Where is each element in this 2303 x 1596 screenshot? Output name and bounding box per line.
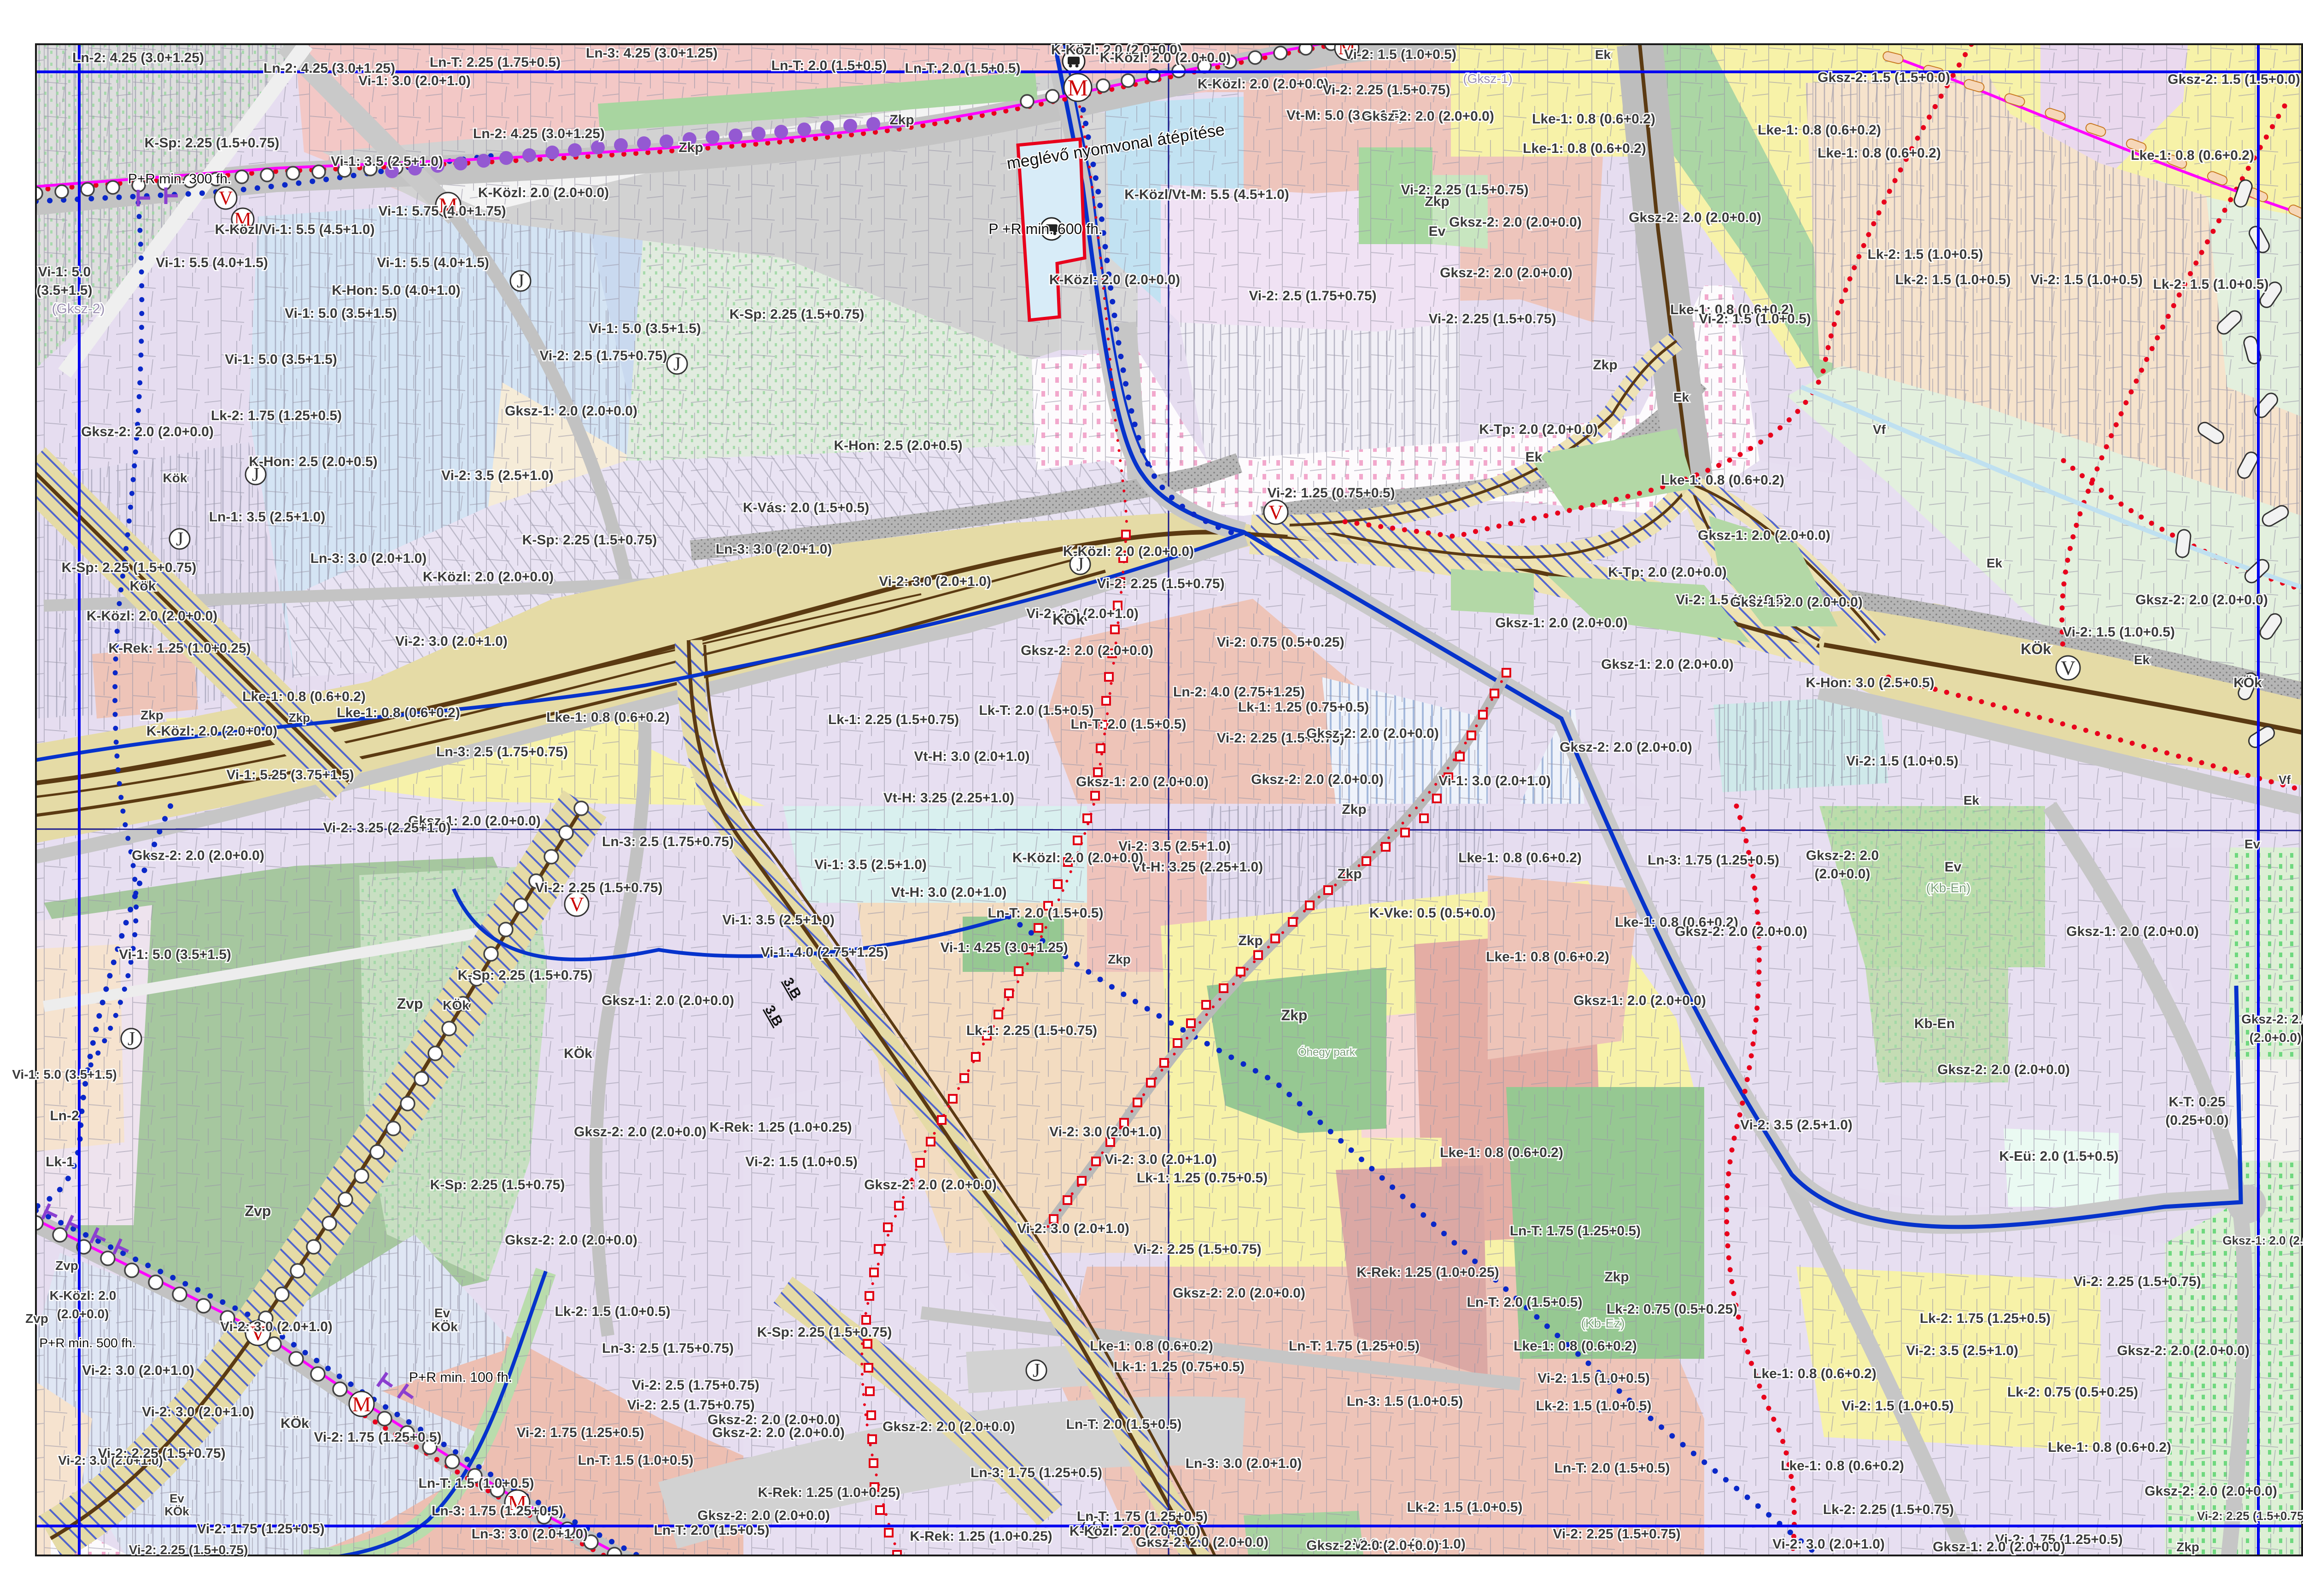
svg-text:Kök: Kök (130, 579, 156, 594)
svg-text:Ek: Ek (1964, 793, 1980, 807)
svg-text:KÖk: KÖk (2021, 641, 2051, 657)
svg-text:Zkp: Zkp (1238, 933, 1263, 948)
svg-text:V: V (569, 893, 584, 916)
svg-text:Ev: Ev (1429, 224, 1446, 239)
svg-text:Gksz-1: 2.0 (2.0+0.0): Gksz-1: 2.0 (2.0+0.0) (1573, 993, 1706, 1008)
svg-text:(Kb-En): (Kb-En) (1926, 881, 1970, 895)
svg-text:K-Rek: 1.25 (1.0+0.25): K-Rek: 1.25 (1.0+0.25) (758, 1485, 900, 1500)
svg-text:K-Közl: 2.0 (2.0+0.0): K-Közl: 2.0 (2.0+0.0) (1198, 76, 1328, 92)
svg-text:P+R min. 300 fh.: P+R min. 300 fh. (128, 171, 231, 187)
svg-text:Vi-2: 2.5 (1.75+0.75): Vi-2: 2.5 (1.75+0.75) (627, 1397, 754, 1413)
svg-text:Vi-2: 1.5 (1.0+0.5): Vi-2: 1.5 (1.0+0.5) (1699, 311, 1811, 327)
svg-text:(2.0+0.0): (2.0+0.0) (1815, 866, 1870, 882)
svg-text:K-Sp: 2.25 (1.5+0.75): K-Sp: 2.25 (1.5+0.75) (430, 1177, 565, 1193)
svg-text:Vi-2: 1.75 (1.25+0.5): Vi-2: 1.75 (1.25+0.5) (516, 1425, 644, 1440)
svg-text:Lk-2: 2.25 (1.5+0.75): Lk-2: 2.25 (1.5+0.75) (1823, 1502, 1954, 1517)
svg-text:Ek: Ek (2134, 653, 2150, 667)
svg-text:K-Tp: 2.0 (2.0+0.0): K-Tp: 2.0 (2.0+0.0) (1479, 422, 1598, 437)
svg-text:K-Sp: 2.25 (1.5+0.75): K-Sp: 2.25 (1.5+0.75) (757, 1325, 892, 1340)
svg-text:(Gksz-2): (Gksz-2) (52, 301, 105, 316)
svg-text:K-Hon: 3.0 (2.5+0.5): K-Hon: 3.0 (2.5+0.5) (1806, 675, 1934, 690)
svg-text:Gksz-2: 2.0 (2.0+0.0): Gksz-2: 2.0 (2.0+0.0) (712, 1425, 845, 1440)
svg-text:K-Közl: 2.0 (2.0+0.0): K-Közl: 2.0 (2.0+0.0) (478, 185, 609, 200)
svg-text:Vi-1: 5.0 (3.5+1.5): Vi-1: 5.0 (3.5+1.5) (285, 306, 397, 321)
svg-text:Gksz-2: 2.0 (2.0+0.0): Gksz-2: 2.0 (2.0+0.0) (1306, 726, 1439, 741)
svg-text:Lke-1: 0.8 (0.6+0.2): Lke-1: 0.8 (0.6+0.2) (1458, 850, 1582, 865)
svg-text:Vi-2: 1.5 (1.0+0.5): Vi-2: 1.5 (1.0+0.5) (1344, 47, 1456, 62)
svg-text:KÖk: KÖk (281, 1416, 309, 1431)
svg-text:Vi-1: 5.0: Vi-1: 5.0 (38, 264, 91, 280)
svg-text:Lk-2: 1.5 (1.0+0.5): Lk-2: 1.5 (1.0+0.5) (555, 1304, 671, 1319)
svg-text:K-Rek: 1.25 (1.0+0.25): K-Rek: 1.25 (1.0+0.25) (1356, 1265, 1499, 1280)
svg-text:K-Közl: 2.0 (2.0+0.0): K-Közl: 2.0 (2.0+0.0) (146, 724, 277, 739)
svg-text:Ek: Ek (1526, 450, 1543, 465)
svg-text:Vt-H: 3.25 (2.25+1.0): Vt-H: 3.25 (2.25+1.0) (1132, 859, 1263, 875)
svg-text:Gksz-1: 2.0 (2.0+0.0): Gksz-1: 2.0 (2.0+0.0) (602, 993, 734, 1008)
svg-text:Zvp: Zvp (245, 1203, 271, 1219)
svg-text:Vi-2: 3.0 (2.0+1.0): Vi-2: 3.0 (2.0+1.0) (395, 634, 508, 649)
svg-text:K-Rek: 1.25 (1.0+0.25): K-Rek: 1.25 (1.0+0.25) (709, 1120, 852, 1135)
svg-text:Vi-2: 1.5 (1.0+0.5): Vi-2: 1.5 (1.0+0.5) (1846, 754, 1958, 769)
svg-text:Lk-1: 1.25 (0.75+0.5): Lk-1: 1.25 (0.75+0.5) (1137, 1170, 1268, 1186)
svg-text:Vi-2: 2.25 (1.5+0.75): Vi-2: 2.25 (1.5+0.75) (2197, 1509, 2303, 1523)
svg-text:J: J (673, 354, 681, 375)
svg-text:Gksz-2: 2.0 (2.0+0.0): Gksz-2: 2.0 (2.0+0.0) (1449, 215, 1582, 230)
svg-text:Lke-1: 0.8 (0.6+0.2): Lke-1: 0.8 (0.6+0.2) (1753, 1366, 1876, 1381)
svg-text:Ek: Ek (1595, 47, 1611, 62)
svg-text:K-Tp: 2.0 (2.0+0.0): K-Tp: 2.0 (2.0+0.0) (1608, 565, 1727, 580)
svg-text:Lke-1: 0.8 (0.6+0.2): Lke-1: 0.8 (0.6+0.2) (1818, 146, 1941, 161)
svg-text:Ln-T: 2.0 (1.5+0.5): Ln-T: 2.0 (1.5+0.5) (1555, 1461, 1670, 1476)
svg-text:V: V (1268, 501, 1283, 524)
svg-text:Vi-2: 0.75 (0.5+0.25): Vi-2: 0.75 (0.5+0.25) (1216, 635, 1344, 650)
svg-text:Ln-3: 1.75 (1.25+0.5): Ln-3: 1.75 (1.25+0.5) (970, 1465, 1102, 1480)
svg-text:Vi-2: 2.5 (1.75+0.75): Vi-2: 2.5 (1.75+0.75) (1249, 288, 1376, 304)
svg-text:Ln-2: 4.25 (3.0+1.25): Ln-2: 4.25 (3.0+1.25) (72, 50, 204, 65)
svg-text:Ln-3: 1.75 (1.25+0.5): Ln-3: 1.75 (1.25+0.5) (432, 1503, 563, 1519)
svg-text:Ln-T: 2.0 (1.5+0.5): Ln-T: 2.0 (1.5+0.5) (988, 906, 1104, 921)
svg-text:P+R min. 100 fh.: P+R min. 100 fh. (409, 1370, 512, 1385)
svg-text:Gksz-2: 2.0 (2.0+0.0): Gksz-2: 2.0 (2.0+0.0) (1021, 643, 1153, 658)
svg-text:(3.5+1.5): (3.5+1.5) (37, 283, 93, 298)
svg-text:K-Hon: 2.5 (2.0+0.5): K-Hon: 2.5 (2.0+0.5) (834, 438, 962, 453)
svg-text:Zkp: Zkp (1337, 866, 1362, 882)
svg-text:Ln-T: 1.75 (1.25+0.5): Ln-T: 1.75 (1.25+0.5) (1077, 1509, 1208, 1524)
svg-text:Gksz-2: 2.0 (2.0+0.0): Gksz-2: 2.0 (2.0+0.0) (1251, 772, 1384, 787)
svg-text:K-Eü: 2.0 (1.5+0.5): K-Eü: 2.0 (1.5+0.5) (1999, 1149, 2118, 1164)
svg-text:Lke-1: 0.8 (0.6+0.2): Lke-1: 0.8 (0.6+0.2) (1486, 949, 1609, 965)
svg-text:Vi-1: 4.25 (3.0+1.25): Vi-1: 4.25 (3.0+1.25) (940, 940, 1068, 955)
svg-text:Lke-1: 0.8 (0.6+0.2): Lke-1: 0.8 (0.6+0.2) (1090, 1339, 1213, 1354)
svg-text:Vi-1: 5.25 (3.75+1.5): Vi-1: 5.25 (3.75+1.5) (226, 767, 354, 783)
svg-text:Vi-1: 3.0 (2.0+1.0): Vi-1: 3.0 (2.0+1.0) (1438, 773, 1551, 789)
svg-text:Lke-1: 0.8 (0.6+0.2): Lke-1: 0.8 (0.6+0.2) (1758, 123, 1881, 138)
svg-text:Vi-1: 3.5 (2.5+1.0): Vi-1: 3.5 (2.5+1.0) (814, 857, 927, 872)
svg-text:Gksz-2: 2.0 (2.0+0.0): Gksz-2: 2.0 (2.0+0.0) (1440, 265, 1572, 281)
svg-text:Lk-2: 0.75 (0.5+0.25): Lk-2: 0.75 (0.5+0.25) (2007, 1385, 2138, 1400)
svg-text:Gksz-1: 2.0 (2.0+0.0): Gksz-1: 2.0 (2.0+0.0) (1730, 595, 1863, 610)
svg-text:Vi-1: 3.5 (2.5+1.0): Vi-1: 3.5 (2.5+1.0) (331, 154, 443, 169)
svg-text:Gksz-2: 2.0 (2.0+0.0): Gksz-2: 2.0 (2.0+0.0) (1173, 1286, 1305, 1301)
svg-text:Ek: Ek (1673, 390, 1689, 404)
svg-text:Vi-2: 2.25 (1.5+0.75): Vi-2: 2.25 (1.5+0.75) (98, 1446, 225, 1461)
svg-text:Vi-2: 2.25 (1.5+0.75): Vi-2: 2.25 (1.5+0.75) (2073, 1274, 2201, 1289)
svg-text:Kb-En: Kb-En (1914, 1016, 1955, 1031)
svg-text:Ln-3: 2.5 (1.75+0.75): Ln-3: 2.5 (1.75+0.75) (436, 744, 568, 760)
svg-text:Vi-1: 4.0 (2.75+1.25): Vi-1: 4.0 (2.75+1.25) (760, 945, 888, 960)
svg-text:Zkp: Zkp (678, 140, 703, 155)
svg-text:P +R min. 600 fh.: P +R min. 600 fh. (988, 221, 1103, 237)
svg-text:Lke-1: 0.8 (0.6+0.2): Lke-1: 0.8 (0.6+0.2) (1514, 1339, 1637, 1354)
svg-text:(0.25+0.0): (0.25+0.0) (2165, 1113, 2229, 1128)
svg-text:Vi-2: 3.0 (2.0+1.0): Vi-2: 3.0 (2.0+1.0) (220, 1319, 333, 1334)
svg-text:K-T: 0.25: K-T: 0.25 (2169, 1094, 2225, 1110)
svg-text:Vi-2: 2.25 (1.5+0.75): Vi-2: 2.25 (1.5+0.75) (1428, 311, 1556, 327)
svg-text:V: V (2061, 657, 2075, 679)
svg-text:Ln-2: 4.25 (3.0+1.25): Ln-2: 4.25 (3.0+1.25) (473, 126, 605, 141)
svg-text:M: M (352, 1392, 371, 1416)
svg-text:Zkp: Zkp (1281, 1007, 1308, 1023)
svg-text:Gksz-1: 2.0 (2.0+0.0): Gksz-1: 2.0 (2.0+0.0) (1495, 615, 1628, 631)
svg-text:Gksz-2: 2.0 (2.0+0.0): Gksz-2: 2.0 (2.0+0.0) (2145, 1484, 2277, 1499)
svg-text:K-Rek: 1.25 (1.0+0.25): K-Rek: 1.25 (1.0+0.25) (910, 1529, 1052, 1544)
svg-text:KÖk: KÖk (164, 1504, 189, 1518)
svg-text:Ln-2: 4.0 (2.75+1.25): Ln-2: 4.0 (2.75+1.25) (1173, 684, 1305, 700)
svg-text:Vt-H: 3.0 (2.0+1.0): Vt-H: 3.0 (2.0+1.0) (914, 749, 1030, 764)
svg-text:Gksz-2: 2.0 (2.0+0.0): Gksz-2: 2.0 (2.0+0.0) (1937, 1062, 2070, 1077)
svg-text:Gksz-2: 2.0 (2.0+0.0): Gksz-2: 2.0 (2.0+0.0) (1675, 924, 1807, 939)
svg-text:Gksz-1: 2.0 (2.0+0.0): Gksz-1: 2.0 (2.0+0.0) (1933, 1539, 2065, 1555)
svg-text:Ln-T: 1.5 (1.0+0.5): Ln-T: 1.5 (1.0+0.5) (578, 1453, 694, 1468)
svg-text:Vi-2: 3.0 (2.0+1.0): Vi-2: 3.0 (2.0+1.0) (1772, 1537, 1885, 1552)
svg-text:Gksz-2: 2.0 (2.0+0.0): Gksz-2: 2.0 (2.0+0.0) (864, 1177, 997, 1193)
svg-text:Ln-3: 1.75 (1.25+0.5): Ln-3: 1.75 (1.25+0.5) (1648, 853, 1779, 868)
svg-text:K-Vás: 2.0 (1.5+0.5): K-Vás: 2.0 (1.5+0.5) (743, 500, 869, 515)
svg-text:Gksz-1: 2.0 (2.0+0.0): Gksz-1: 2.0 (2.0+0.0) (1698, 528, 1830, 543)
svg-text:Lke-1: 0.8 (0.6+0.2): Lke-1: 0.8 (0.6+0.2) (1440, 1145, 1563, 1160)
svg-text:Ln-3: 4.25 (3.0+1.25): Ln-3: 4.25 (3.0+1.25) (586, 46, 718, 61)
svg-text:K-Sp: 2.25 (1.5+0.75): K-Sp: 2.25 (1.5+0.75) (522, 532, 657, 548)
svg-text:Zkp: Zkp (289, 711, 310, 725)
svg-text:K-Sp: 2.25 (1.5+0.75): K-Sp: 2.25 (1.5+0.75) (730, 307, 865, 322)
svg-text:J: J (1033, 1360, 1040, 1381)
svg-text:Lk-2: 1.5 (1.0+0.5): Lk-2: 1.5 (1.0+0.5) (2153, 277, 2269, 292)
svg-text:Zvp: Zvp (397, 995, 423, 1012)
svg-text:K-Közl/Vi-1: 5.5 (4.5+1.0): K-Közl/Vi-1: 5.5 (4.5+1.0) (215, 222, 374, 237)
svg-text:Ev: Ev (170, 1491, 184, 1505)
svg-text:Lk-1: Lk-1 (46, 1154, 74, 1169)
svg-text:Zkp: Zkp (140, 708, 164, 722)
svg-text:Vf: Vf (1873, 422, 1886, 437)
svg-text:Vi-2: 1.75 (1.25+0.5): Vi-2: 1.75 (1.25+0.5) (197, 1521, 324, 1537)
svg-text:Lke-1: 0.8 (0.6+0.2): Lke-1: 0.8 (0.6+0.2) (1661, 473, 1784, 488)
svg-text:Vi-2: 3.0 (2.0+1.0): Vi-2: 3.0 (2.0+1.0) (1049, 1124, 1162, 1140)
svg-text:Zkp: Zkp (889, 112, 914, 128)
svg-text:Vi-2: 1.75 (1.25+0.5): Vi-2: 1.75 (1.25+0.5) (314, 1430, 441, 1445)
svg-text:Vi-2: 3.25 (2.25+1.0): Vi-2: 3.25 (2.25+1.0) (323, 820, 450, 836)
svg-text:Ln-3: 2.5 (1.75+0.75): Ln-3: 2.5 (1.75+0.75) (602, 1341, 734, 1356)
svg-text:Vt-H: 3.0 (2.0+1.0): Vt-H: 3.0 (2.0+1.0) (891, 885, 1007, 900)
svg-text:Vf: Vf (2279, 773, 2291, 787)
svg-text:Zkp: Zkp (1108, 952, 1131, 966)
svg-text:Lk-2: 1.5 (1.0+0.5): Lk-2: 1.5 (1.0+0.5) (1407, 1500, 1523, 1515)
svg-text:Vi-2: 2.25 (1.5+0.75): Vi-2: 2.25 (1.5+0.75) (1401, 182, 1528, 198)
svg-text:Vi-2: 2.25 (1.5+0.75): Vi-2: 2.25 (1.5+0.75) (1134, 1242, 1261, 1257)
svg-text:K-Rek: 1.25 (1.0+0.25): K-Rek: 1.25 (1.0+0.25) (108, 641, 251, 656)
svg-text:Gksz-1: 2.0 (2.0+0.0): Gksz-1: 2.0 (2.0+0.0) (2222, 1234, 2303, 1247)
svg-text:Ln-2: Ln-2 (50, 1108, 79, 1123)
svg-text:KÖk: KÖk (443, 998, 469, 1012)
svg-text:Gksz-2: 2.0 (2.0+0.0): Gksz-2: 2.0 (2.0+0.0) (2135, 592, 2268, 608)
svg-text:Vt-H: 3.25 (2.25+1.0): Vt-H: 3.25 (2.25+1.0) (883, 790, 1014, 806)
svg-text:Lk-1: 1.25 (0.75+0.5): Lk-1: 1.25 (0.75+0.5) (1238, 700, 1369, 715)
svg-text:Gksz-2: 2.0 (2.0+0.0): Gksz-2: 2.0 (2.0+0.0) (1560, 740, 1692, 755)
svg-text:Vi-2: 2.25 (1.5+0.75): Vi-2: 2.25 (1.5+0.75) (1097, 576, 1224, 591)
svg-text:Gksz-2: 2.0 (2.0+0.0): Gksz-2: 2.0 (2.0+0.0) (1362, 109, 1494, 124)
svg-text:Ln-3: 3.0 (2.0+1.0): Ln-3: 3.0 (2.0+1.0) (472, 1526, 588, 1542)
svg-text:Gksz-2: 1.5 (1.5+0.0): Gksz-2: 1.5 (1.5+0.0) (1818, 70, 1950, 85)
svg-text:Vi-2: 3.5 (2.5+1.0): Vi-2: 3.5 (2.5+1.0) (441, 468, 554, 483)
svg-text:Vi-1: 5.0 (3.5+1.5): Vi-1: 5.0 (3.5+1.5) (589, 321, 701, 336)
svg-text:Ln-3: 3.0 (2.0+1.0): Ln-3: 3.0 (2.0+1.0) (1186, 1456, 1302, 1471)
svg-text:K-Közl: 2.0: K-Közl: 2.0 (50, 1288, 117, 1303)
svg-text:Zkp: Zkp (1342, 802, 1366, 817)
svg-text:Vi-2: 1.5 (1.0+0.5): Vi-2: 1.5 (1.0+0.5) (1537, 1371, 1650, 1386)
svg-text:Gksz-2: 2.0 (2.0+0.0): Gksz-2: 2.0 (2.0+0.0) (883, 1419, 1015, 1434)
svg-text:Vi-1: 5.5 (4.0+1.5): Vi-1: 5.5 (4.0+1.5) (377, 255, 489, 270)
svg-text:Lk-2: 1.5 (1.0+0.5): Lk-2: 1.5 (1.0+0.5) (1536, 1398, 1652, 1414)
svg-text:Vi-2: 1.5 (1.0+0.5): Vi-2: 1.5 (1.0+0.5) (2030, 272, 2143, 287)
svg-text:Vi-2: 3.0 (2.0+1.0): Vi-2: 3.0 (2.0+1.0) (1105, 1152, 1217, 1167)
svg-text:Ln-T: 2.0 (1.5+0.5): Ln-T: 2.0 (1.5+0.5) (905, 61, 1021, 76)
svg-text:Vi-2: 3.0 (2.0+1.0): Vi-2: 3.0 (2.0+1.0) (1017, 1221, 1129, 1236)
svg-text:Vi-2: 1.5 (1.0+0.5): Vi-2: 1.5 (1.0+0.5) (2063, 625, 2175, 640)
svg-text:Lk-1: 2.25 (1.5+0.75): Lk-1: 2.25 (1.5+0.75) (828, 712, 959, 727)
svg-text:Vi-1: 5.75 (4.0+1.75): Vi-1: 5.75 (4.0+1.75) (378, 204, 506, 219)
svg-text:Ev: Ev (434, 1306, 450, 1320)
svg-text:Vi-1: 5.0 (3.5+1.5): Vi-1: 5.0 (3.5+1.5) (119, 947, 231, 962)
svg-text:Lk-T: 2.0 (1.5+0.5): Lk-T: 2.0 (1.5+0.5) (979, 703, 1093, 718)
svg-text:Gksz-2: 2.0 (2.0+0.0): Gksz-2: 2.0 (2.0+0.0) (1629, 210, 1761, 225)
svg-text:Lke-1: 0.8 (0.6+0.2): Lke-1: 0.8 (0.6+0.2) (337, 705, 460, 720)
svg-text:Vi-1: 5.0 (3.5+1.5): Vi-1: 5.0 (3.5+1.5) (12, 1067, 117, 1082)
svg-text:Vi-2: 2.25 (1.5+0.75): Vi-2: 2.25 (1.5+0.75) (1553, 1526, 1680, 1542)
svg-text:Óhegy park: Óhegy park (1298, 1046, 1356, 1058)
svg-text:Vi-2: 1.5 (1.0+0.5): Vi-2: 1.5 (1.0+0.5) (745, 1154, 858, 1169)
svg-text:K-Közl: 2.0 (2.0+0.0): K-Közl: 2.0 (2.0+0.0) (1063, 544, 1194, 559)
svg-text:Zkp: Zkp (1593, 357, 1617, 373)
svg-text:Vi-2: 1.5 (1.0+0.5): Vi-2: 1.5 (1.0+0.5) (1841, 1398, 1954, 1414)
svg-text:Ln-T: 2.0 (1.5+0.5): Ln-T: 2.0 (1.5+0.5) (1071, 717, 1187, 732)
svg-text:Lke-1: 0.8 (0.6+0.2): Lke-1: 0.8 (0.6+0.2) (1781, 1458, 1904, 1473)
svg-text:Vi-2: 2.5 (1.75+0.75): Vi-2: 2.5 (1.75+0.75) (539, 348, 667, 363)
svg-text:Ln-T: 2.0 (1.5+0.5): Ln-T: 2.0 (1.5+0.5) (772, 58, 887, 73)
svg-text:Vi-2: 1.25 (0.75+0.5): Vi-2: 1.25 (0.75+0.5) (1267, 485, 1395, 501)
svg-text:Ln-3: 2.5 (1.75+0.75): Ln-3: 2.5 (1.75+0.75) (602, 834, 734, 849)
svg-text:Vi-1: 3.5 (2.5+1.0): Vi-1: 3.5 (2.5+1.0) (722, 912, 835, 928)
svg-text:K-Sp: 2.25 (1.5+0.75): K-Sp: 2.25 (1.5+0.75) (145, 135, 280, 151)
svg-text:Lke-1: 0.8 (0.6+0.2): Lke-1: 0.8 (0.6+0.2) (242, 689, 366, 704)
svg-text:Gksz-1: 2.0 (2.0+0.0): Gksz-1: 2.0 (2.0+0.0) (505, 403, 637, 419)
svg-text:Lke-1: 0.8 (0.6+0.2): Lke-1: 0.8 (0.6+0.2) (546, 710, 670, 725)
svg-text:Vi-2: 3.5 (2.5+1.0): Vi-2: 3.5 (2.5+1.0) (1118, 839, 1231, 854)
svg-text:J: J (176, 529, 183, 550)
svg-text:Vi-2: 3.0 (2.0+1.0): Vi-2: 3.0 (2.0+1.0) (879, 574, 991, 589)
svg-text:K-Közl: 2.0 (2.0+0.0): K-Közl: 2.0 (2.0+0.0) (1100, 50, 1231, 65)
svg-text:Vi-2: 3.0 (2.0+1.0): Vi-2: 3.0 (2.0+1.0) (82, 1363, 194, 1378)
svg-text:KÖk: KÖk (1052, 611, 1085, 628)
svg-text:K-Sp: 2.25 (1.5+0.75): K-Sp: 2.25 (1.5+0.75) (458, 968, 593, 983)
svg-text:K-Sp: 2.25 (1.5+0.75): K-Sp: 2.25 (1.5+0.75) (62, 560, 197, 575)
svg-text:Lke-1: 0.8 (0.6+0.2): Lke-1: 0.8 (0.6+0.2) (1532, 111, 1655, 127)
svg-text:Ln-T: 2.25 (1.75+0.5): Ln-T: 2.25 (1.75+0.5) (430, 55, 561, 70)
svg-text:Lke-1: 0.8 (0.6+0.2): Lke-1: 0.8 (0.6+0.2) (1523, 141, 1646, 156)
svg-text:Ln-T: 1.5 (1.0+0.5): Ln-T: 1.5 (1.0+0.5) (419, 1476, 534, 1491)
svg-text:K-Közl/Vt-M: 5.5 (4.5+1.0): K-Közl/Vt-M: 5.5 (4.5+1.0) (1124, 187, 1289, 202)
svg-text:K-Hon: 5.0 (4.0+1.0): K-Hon: 5.0 (4.0+1.0) (332, 283, 460, 298)
svg-text:Zvp: Zvp (55, 1258, 78, 1273)
svg-text:Ln-T: 1.75 (1.25+0.5): Ln-T: 1.75 (1.25+0.5) (1289, 1339, 1420, 1354)
svg-text:K-Hon: 2.5 (2.0+0.5): K-Hon: 2.5 (2.0+0.5) (249, 454, 377, 469)
svg-text:K-Közl: 2.0 (2.0+0.0): K-Közl: 2.0 (2.0+0.0) (1049, 272, 1180, 287)
svg-text:K-Vke: 0.5 (0.5+0.0): K-Vke: 0.5 (0.5+0.0) (1369, 906, 1496, 921)
svg-text:M: M (1068, 75, 1088, 100)
svg-text:Vi-1: 5.0 (3.5+1.5): Vi-1: 5.0 (3.5+1.5) (225, 352, 337, 367)
svg-text:Ev: Ev (2245, 837, 2261, 851)
svg-text:Gksz-1: 2.0 (2.0+0.0): Gksz-1: 2.0 (2.0+0.0) (1076, 774, 1209, 789)
svg-text:Lk-2: 1.75 (1.25+0.5): Lk-2: 1.75 (1.25+0.5) (211, 408, 342, 423)
svg-text:K-Közl: 2.0 (2.0+0.0): K-Közl: 2.0 (2.0+0.0) (1070, 1524, 1200, 1539)
svg-text:Vi-2: 2.25 (1.5+0.75): Vi-2: 2.25 (1.5+0.75) (535, 880, 662, 895)
svg-text:K-Közl: 2.0 (2.0+0.0): K-Közl: 2.0 (2.0+0.0) (87, 608, 217, 624)
svg-text:Vi-2: 2.25 (1.5+0.75): Vi-2: 2.25 (1.5+0.75) (129, 1543, 248, 1557)
svg-text:Ln-3: 3.0 (2.0+1.0): Ln-3: 3.0 (2.0+1.0) (310, 551, 427, 566)
svg-text:KÖk: KÖk (431, 1320, 458, 1334)
svg-text:Gksz-2: 2.0: Gksz-2: 2.0 (1806, 848, 1879, 863)
svg-text:KÖk: KÖk (564, 1046, 592, 1061)
svg-text:Lke-1: 0.8 (0.6+0.2): Lke-1: 0.8 (0.6+0.2) (2048, 1440, 2171, 1455)
svg-text:Gksz-2: 2.0 (2.0+0.0): Gksz-2: 2.0 (2.0+0.0) (1306, 1538, 1439, 1553)
svg-text:K-Közl: 2.0 (2.0+0.0): K-Közl: 2.0 (2.0+0.0) (423, 569, 554, 585)
svg-text:Gksz-2: 2.0 (2.0+0.0): Gksz-2: 2.0 (2.0+0.0) (574, 1124, 707, 1140)
svg-text:Vi-2: 2.25 (1.5+0.75): Vi-2: 2.25 (1.5+0.75) (1322, 82, 1450, 98)
svg-text:Ln-T: 2.0 (1.5+0.5): Ln-T: 2.0 (1.5+0.5) (654, 1523, 770, 1538)
svg-text:Kök: Kök (163, 471, 187, 485)
svg-text:Lk-1: 2.25 (1.5+0.75): Lk-1: 2.25 (1.5+0.75) (966, 1023, 1097, 1038)
svg-text:Gksz-2: 2.0 (2.0+0.0): Gksz-2: 2.0 (2.0+0.0) (2117, 1343, 2250, 1358)
svg-text:Lk-1: 1.25 (0.75+0.5): Lk-1: 1.25 (0.75+0.5) (1114, 1359, 1245, 1374)
svg-text:Gksz-2: 1.5 (1.5+0.0): Gksz-2: 1.5 (1.5+0.0) (2168, 72, 2300, 87)
svg-text:Ln-3: 3.0 (2.0+1.0): Ln-3: 3.0 (2.0+1.0) (716, 542, 832, 557)
svg-text:Gksz-2: 2.0 (2.0+0.0): Gksz-2: 2.0 (2.0+0.0) (81, 424, 214, 439)
svg-text:P+R min. 500 fh.: P+R min. 500 fh. (39, 1336, 135, 1350)
svg-text:Ln-T: 1.75 (1.25+0.5): Ln-T: 1.75 (1.25+0.5) (1510, 1223, 1641, 1239)
svg-text:Gksz-2: 2.0 (2.0+0.0): Gksz-2: 2.0 (2.0+0.0) (132, 848, 264, 863)
svg-text:Vi-2: 2.5 (1.75+0.75): Vi-2: 2.5 (1.75+0.75) (631, 1378, 759, 1393)
svg-text:Lk-2: 1.75 (1.25+0.5): Lk-2: 1.75 (1.25+0.5) (1920, 1311, 2051, 1326)
svg-text:Ln-T: 2.0 (1.5+0.5): Ln-T: 2.0 (1.5+0.5) (1467, 1295, 1583, 1310)
svg-text:J: J (128, 1029, 135, 1050)
svg-text:Vi-1: 5.5 (4.0+1.5): Vi-1: 5.5 (4.0+1.5) (156, 255, 268, 270)
svg-text:Zkp: Zkp (2176, 1540, 2199, 1554)
svg-text:(2.0+0.0): (2.0+0.0) (57, 1307, 109, 1321)
svg-text:(2.0+0.0): (2.0+0.0) (2250, 1030, 2302, 1045)
svg-text:Gksz-2: 2.0: Gksz-2: 2.0 (2241, 1012, 2303, 1026)
svg-text:Ln-1: 3.5 (2.5+1.0): Ln-1: 3.5 (2.5+1.0) (209, 509, 326, 525)
svg-text:Gksz-1: 2.0 (2.0+0.0): Gksz-1: 2.0 (2.0+0.0) (2066, 924, 2199, 939)
svg-text:Ln-3: 1.5 (1.0+0.5): Ln-3: 1.5 (1.0+0.5) (1347, 1394, 1463, 1409)
svg-text:Gksz-2: 2.0 (2.0+0.0): Gksz-2: 2.0 (2.0+0.0) (697, 1508, 830, 1523)
svg-text:Vi-1: 3.0 (2.0+1.0): Vi-1: 3.0 (2.0+1.0) (358, 73, 471, 88)
svg-text:Lke-1: 0.8 (0.6+0.2): Lke-1: 0.8 (0.6+0.2) (2131, 148, 2254, 163)
svg-text:Zkp: Zkp (1604, 1269, 1629, 1285)
svg-text:Ek: Ek (1987, 556, 2003, 570)
svg-text:KÖk: KÖk (2233, 675, 2262, 690)
svg-text:Vi-2: 3.0 (2.0+1.0): Vi-2: 3.0 (2.0+1.0) (142, 1404, 254, 1420)
svg-text:V: V (219, 188, 233, 209)
svg-text:(Gksz-1): (Gksz-1) (1463, 71, 1512, 86)
svg-text:Lk-2: 1.5 (1.0+0.5): Lk-2: 1.5 (1.0+0.5) (1895, 272, 2011, 287)
svg-text:Vi-2: 3.5 (2.5+1.0): Vi-2: 3.5 (2.5+1.0) (1740, 1117, 1853, 1133)
svg-text:J: J (517, 271, 524, 292)
svg-text:Lk-2: 0.75 (0.5+0.25): Lk-2: 0.75 (0.5+0.25) (1607, 1302, 1737, 1317)
svg-text:(Kb-Ez): (Kb-Ez) (1581, 1316, 1625, 1330)
svg-text:Vi-2: 3.5 (2.5+1.0): Vi-2: 3.5 (2.5+1.0) (1906, 1343, 2018, 1358)
svg-text:Lk-2: 1.5 (1.0+0.5): Lk-2: 1.5 (1.0+0.5) (1868, 247, 1983, 262)
svg-text:Gksz-1: 2.0 (2.0+0.0): Gksz-1: 2.0 (2.0+0.0) (1601, 657, 1734, 672)
svg-text:Gksz-2: 2.0 (2.0+0.0): Gksz-2: 2.0 (2.0+0.0) (505, 1233, 637, 1248)
svg-text:Ev: Ev (1945, 859, 1962, 875)
svg-text:Zvp: Zvp (25, 1311, 48, 1326)
svg-text:Ln-T: 2.0 (1.5+0.5): Ln-T: 2.0 (1.5+0.5) (1066, 1417, 1182, 1432)
